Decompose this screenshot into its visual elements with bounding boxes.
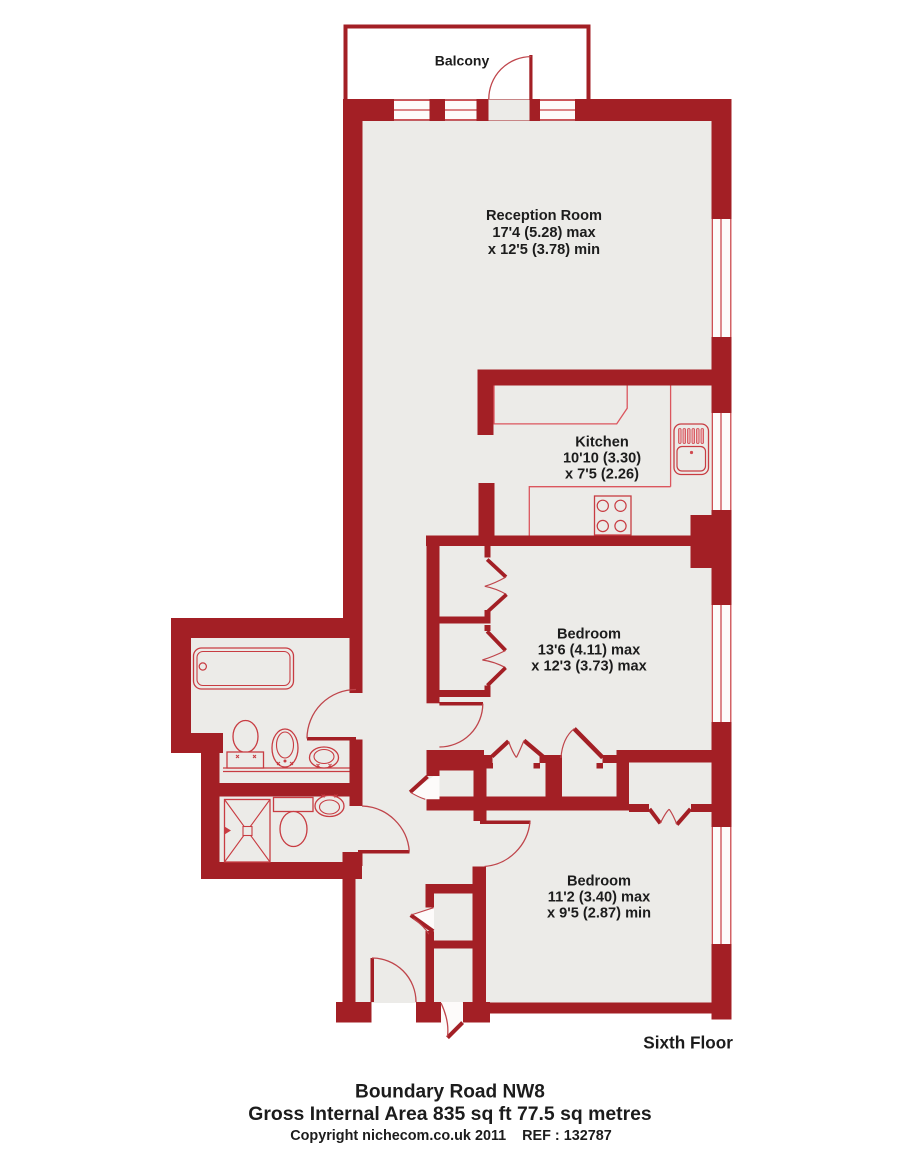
svg-text:17'4 (5.28) max: 17'4 (5.28) max: [492, 225, 596, 241]
svg-text:Boundary Road NW8: Boundary Road NW8: [355, 1082, 545, 1103]
svg-text:Kitchen: Kitchen: [575, 435, 629, 451]
svg-text:Sixth Floor: Sixth Floor: [643, 1033, 733, 1053]
svg-text:Bedroom: Bedroom: [557, 627, 621, 643]
svg-text:x 12'5 (3.78) min: x 12'5 (3.78) min: [488, 242, 600, 258]
svg-text:Gross Internal Area 835 sq ft: Gross Internal Area 835 sq ft 77.5 sq me…: [248, 1103, 651, 1125]
svg-text:Balcony: Balcony: [435, 53, 490, 69]
svg-text:x 7'5 (2.26): x 7'5 (2.26): [565, 467, 639, 483]
svg-text:Copyright nichecom.co.uk 2011: Copyright nichecom.co.uk 2011 REF : 1327…: [290, 1128, 612, 1144]
svg-text:x 12'3 (3.73) max: x 12'3 (3.73) max: [531, 659, 647, 675]
svg-text:Reception Room: Reception Room: [486, 208, 602, 224]
svg-text:Bedroom: Bedroom: [567, 874, 631, 890]
svg-text:10'10 (3.30): 10'10 (3.30): [563, 451, 641, 467]
svg-text:x 9'5 (2.87) min: x 9'5 (2.87) min: [547, 906, 651, 922]
svg-text:13'6 (4.11) max: 13'6 (4.11) max: [538, 643, 641, 659]
svg-text:11'2 (3.40) max: 11'2 (3.40) max: [548, 890, 651, 906]
